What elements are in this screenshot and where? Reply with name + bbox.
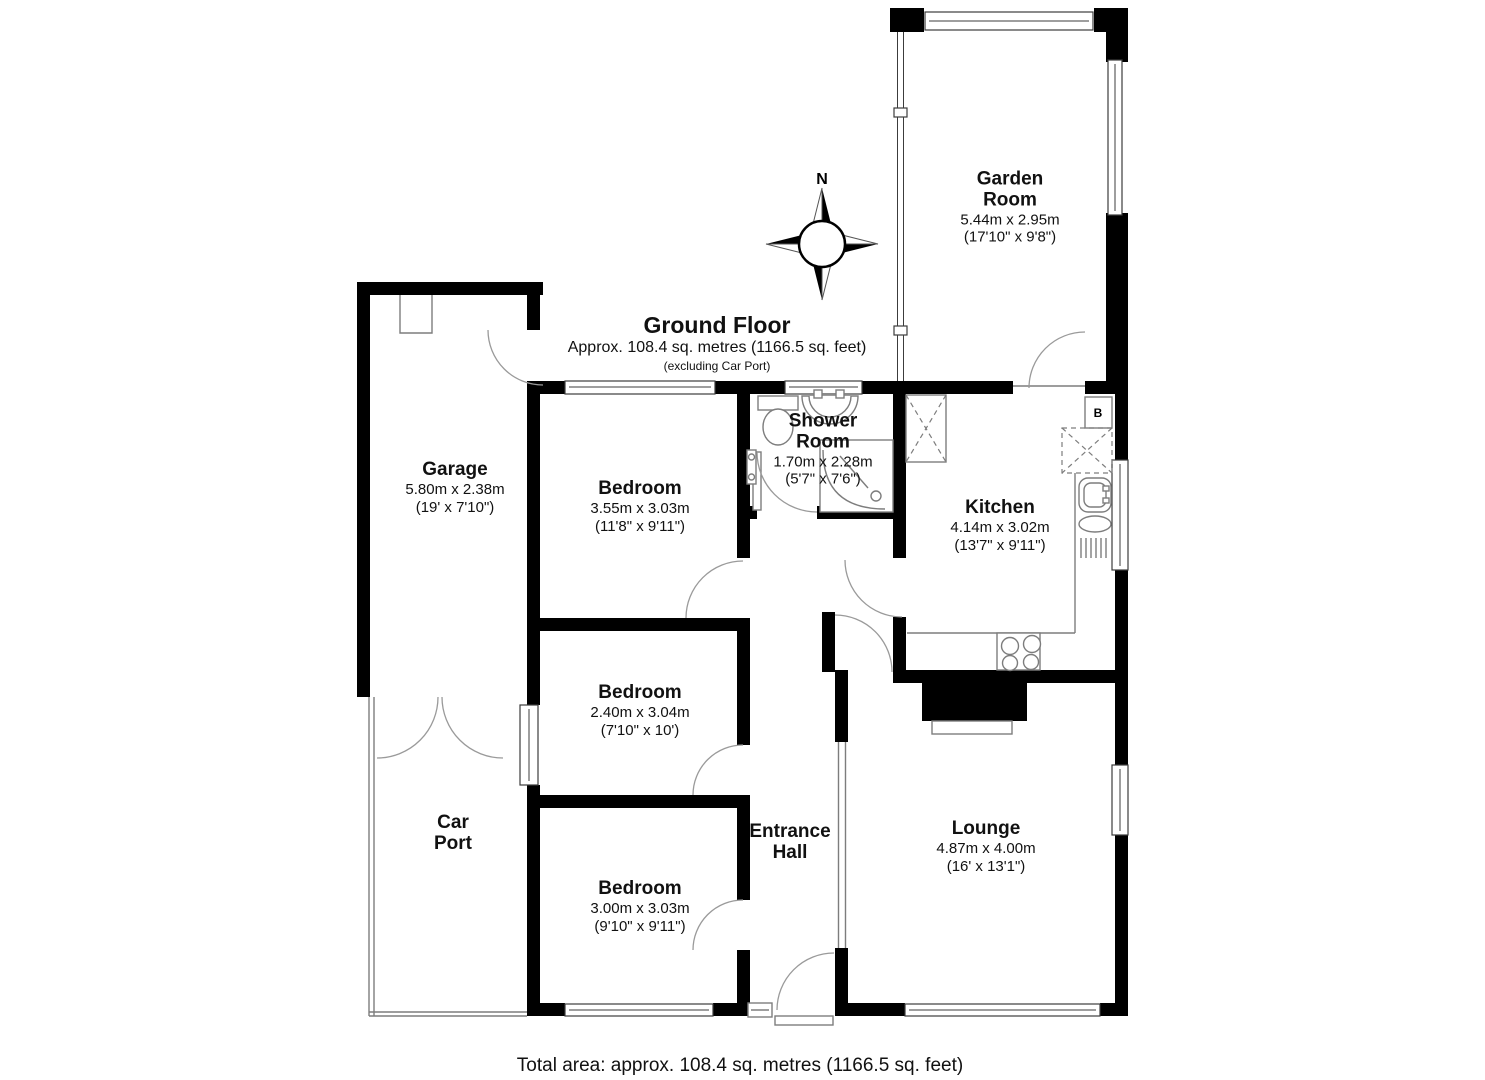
bedroom3-door <box>693 900 743 950</box>
bedroom2-door <box>693 745 743 795</box>
room-name: Entrance Hall <box>735 822 845 864</box>
room-name: Lounge <box>936 819 1035 840</box>
room-dimensions-imperial: (17'10" x 9'8") <box>948 229 1073 247</box>
room-dimensions-imperial: (9'10" x 9'11") <box>590 917 689 935</box>
entrance-door <box>748 953 834 1025</box>
bedroom1-door <box>686 561 743 618</box>
cupboard <box>1062 428 1112 473</box>
room-dimensions-imperial: (13'7" x 9'11") <box>950 536 1049 554</box>
room-label-lounge: Lounge 4.87m x 4.00m (16' x 13'1") <box>936 819 1035 875</box>
room-label-garage: Garage 5.80m x 2.38m (19' x 7'10") <box>405 460 504 516</box>
hob <box>997 633 1041 671</box>
room-label-bedroom1: Bedroom 3.55m x 3.03m (11'8" x 9'11") <box>590 479 689 535</box>
fireplace <box>922 683 1027 721</box>
kitchen-door <box>845 560 902 617</box>
plan-area-text: Approx. 108.4 sq. metres (1166.5 sq. fee… <box>537 338 897 359</box>
room-dimensions-metric: 4.87m x 4.00m <box>936 840 1035 858</box>
floor-plan: B <box>0 0 1485 1080</box>
window <box>565 1004 713 1016</box>
room-dimensions-metric: 5.44m x 2.95m <box>948 211 1073 229</box>
boiler-unit: B <box>1085 397 1112 428</box>
compass-north-label: N <box>816 171 828 188</box>
window <box>925 12 1093 30</box>
garage-double-door-right <box>442 697 503 758</box>
room-dimensions-metric: 4.14m x 3.02m <box>950 519 1049 537</box>
room-label-bedroom3: Bedroom 3.00m x 3.03m (9'10" x 9'11") <box>590 879 689 935</box>
floor-plan-drawing: B <box>0 0 1485 1080</box>
room-name: Garden Room <box>948 169 1073 211</box>
room-name: Car Port <box>418 813 488 855</box>
total-area-text: Total area: approx. 108.4 sq. metres (11… <box>390 1055 1090 1077</box>
boiler-label: B <box>1094 406 1103 420</box>
window <box>905 1004 1100 1016</box>
plan-note: (excluding Car Port) <box>537 359 897 373</box>
room-name: Bedroom <box>590 879 689 900</box>
room-dimensions-imperial: (11'8" x 9'11") <box>590 517 689 535</box>
room-dimensions-metric: 3.00m x 3.03m <box>590 900 689 918</box>
window <box>520 705 538 785</box>
window <box>1108 60 1122 215</box>
garage-side-door <box>488 330 543 385</box>
kitchen-sink <box>1079 478 1111 558</box>
room-name: Bedroom <box>590 479 689 500</box>
room-name: Garage <box>405 460 504 481</box>
room-label-garden-room: Garden Room 5.44m x 2.95m (17'10" x 9'8"… <box>948 169 1073 246</box>
room-dimensions-imperial: (16' x 13'1") <box>936 857 1035 875</box>
room-label-shower-room: Shower Room 1.70m x 2.28m (5'7" x 7'6") <box>758 411 888 488</box>
room-dimensions-imperial: (19' x 7'10") <box>405 498 504 516</box>
room-label-kitchen: Kitchen 4.14m x 3.02m (13'7" x 9'11") <box>950 498 1049 554</box>
window <box>1112 460 1128 570</box>
room-dimensions-metric: 5.80m x 2.38m <box>405 481 504 499</box>
room-label-car-port: Car Port <box>418 813 488 855</box>
car-port-outline <box>369 697 527 1016</box>
larder-unit <box>906 395 946 462</box>
room-name: Shower Room <box>768 411 878 453</box>
compass-icon: N <box>766 171 878 300</box>
room-dimensions-metric: 2.40m x 3.04m <box>590 704 689 722</box>
hearth <box>932 721 1012 734</box>
lounge-door <box>835 615 892 672</box>
room-dimensions-metric: 3.55m x 3.03m <box>590 500 689 518</box>
garage-recess <box>400 295 432 333</box>
room-name: Bedroom <box>590 683 689 704</box>
towel-radiator <box>747 450 756 484</box>
room-dimensions-imperial: (7'10" x 10') <box>590 721 689 739</box>
room-dimensions-imperial: (5'7" x 7'6") <box>758 471 888 489</box>
window <box>785 381 862 394</box>
window <box>565 381 715 394</box>
room-label-entrance-hall: Entrance Hall <box>735 822 845 864</box>
garage-double-door-left <box>377 697 438 758</box>
room-dimensions-metric: 1.70m x 2.28m <box>758 453 888 471</box>
room-label-bedroom2: Bedroom 2.40m x 3.04m (7'10" x 10') <box>590 683 689 739</box>
plan-title-block: Ground Floor Approx. 108.4 sq. metres (1… <box>537 313 897 373</box>
window <box>1112 765 1128 835</box>
plan-title: Ground Floor <box>537 313 897 338</box>
garden-room-door <box>1013 332 1085 388</box>
room-name: Kitchen <box>950 498 1049 519</box>
